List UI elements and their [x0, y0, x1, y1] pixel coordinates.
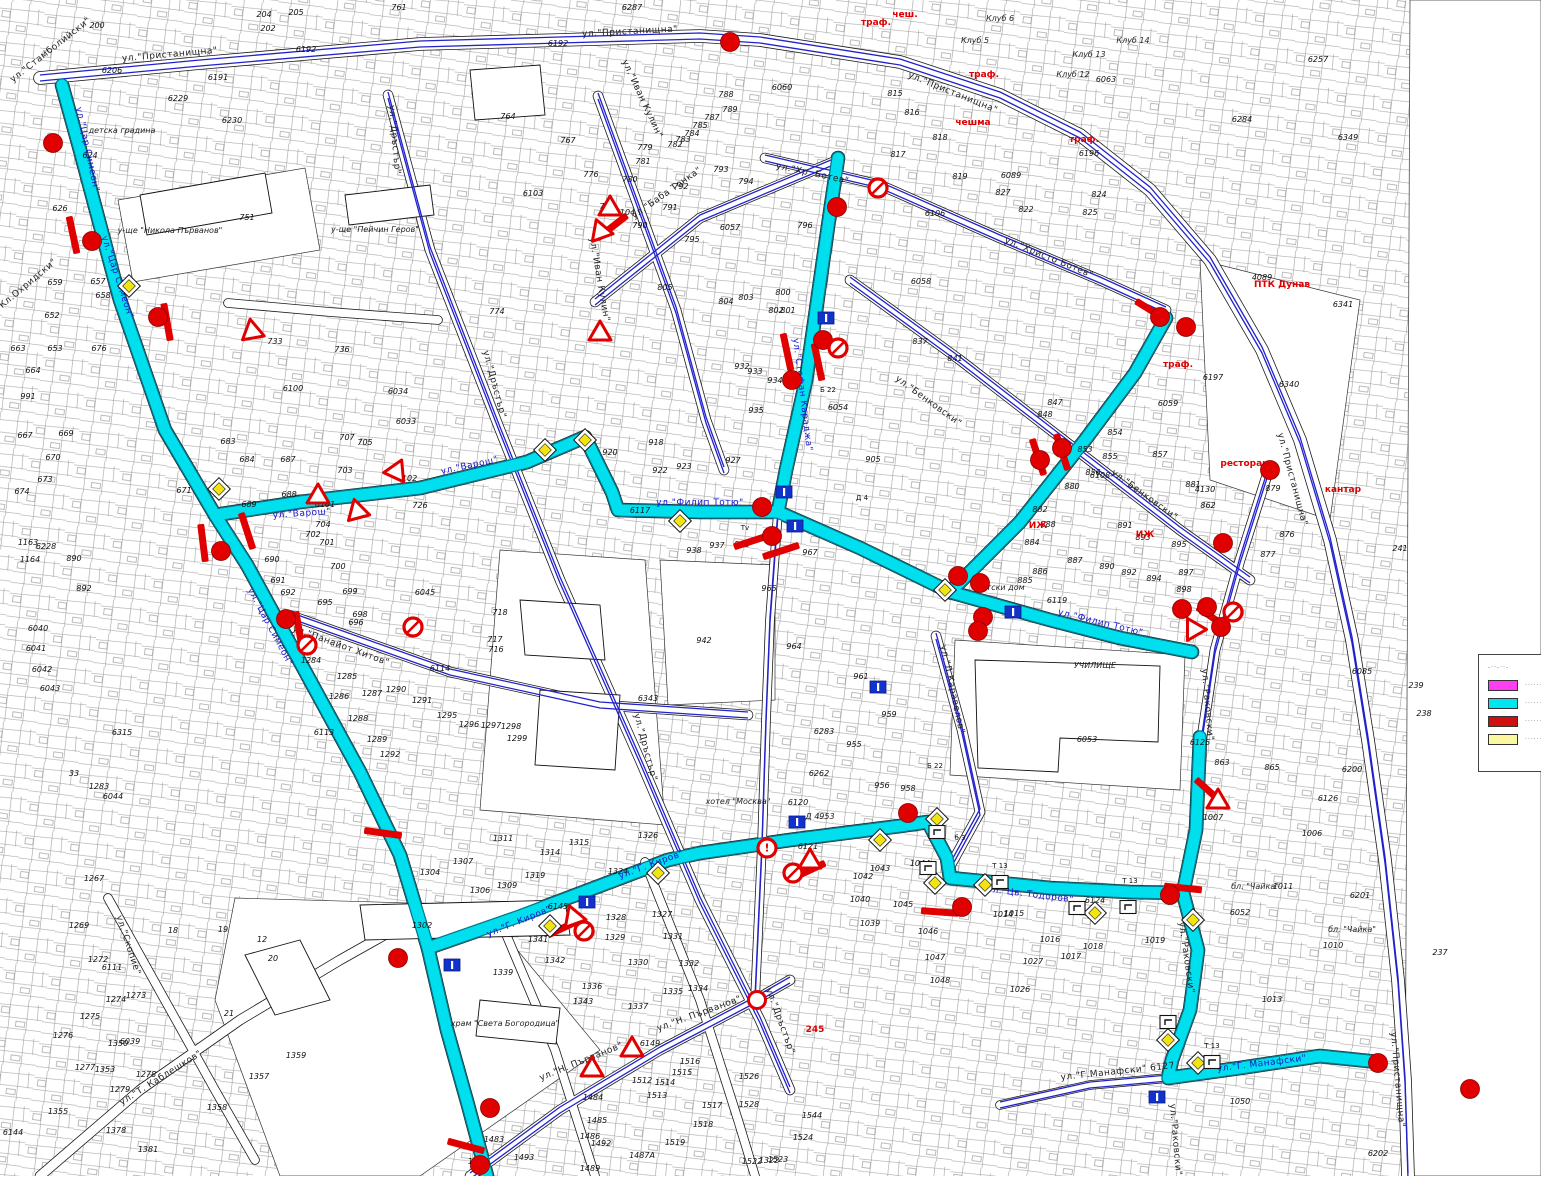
parcel-number: 793: [713, 165, 728, 174]
parcel-number: 688: [281, 490, 296, 499]
parcel-number: 701: [319, 538, 334, 547]
parcel-number: 6287: [622, 3, 643, 12]
parcel-number: 6149: [640, 1039, 660, 1048]
parcel-number: 1027: [1023, 957, 1044, 966]
parcel-number: 704: [315, 520, 330, 529]
legend-label: ········: [1525, 718, 1541, 725]
parcel-number: 1276: [53, 1031, 73, 1040]
parcel-number: 1311: [493, 834, 513, 843]
parcel-number: 817: [890, 150, 906, 159]
parcel-number: 815: [887, 89, 902, 98]
parcel-number: 703: [337, 466, 352, 475]
parcel-number: 6201: [1350, 891, 1370, 900]
warning-glyph: !: [764, 842, 769, 855]
legend-swatch-cyan: [1488, 698, 1518, 709]
parcel-number: 882: [1032, 505, 1047, 514]
survey-hub-icon: [1173, 600, 1192, 619]
parcel-number: 6196: [1079, 149, 1099, 158]
parcel-number: 671: [176, 486, 191, 495]
no-entry-sign-icon: [829, 339, 847, 357]
red-annotation: траф.: [1069, 135, 1099, 145]
parcel-number: 927: [725, 456, 741, 465]
info-sign-glyph: [586, 898, 588, 906]
parcel-number: 1013: [1262, 995, 1282, 1004]
parcel-number: 6085: [1352, 667, 1372, 676]
parcel-number: 6058: [911, 277, 931, 286]
parcel-number: 690: [264, 555, 279, 564]
parcel-number: 6114: [430, 664, 450, 673]
parcel-number: 967: [802, 548, 818, 557]
parcel-number: 956: [874, 781, 889, 790]
survey-hub-icon: [1031, 451, 1050, 470]
parcel-number: 237: [1432, 948, 1448, 957]
parcel-number: 855: [1102, 452, 1117, 461]
parcel-number: 1267: [84, 874, 105, 883]
sign-code-label: Б 22: [927, 762, 943, 770]
info-sign-icon: [818, 312, 834, 324]
parcel-number: 890: [1099, 562, 1114, 571]
parcel-number: 6103: [523, 189, 543, 198]
parcel-number: 961: [853, 672, 868, 681]
parcel-number: 1378: [106, 1126, 126, 1135]
area-label: Клуб 12: [1056, 70, 1089, 79]
parcel-number: 241: [1392, 544, 1407, 553]
parcel-number: 825: [1082, 208, 1097, 217]
parcel-number: 880: [1064, 482, 1079, 491]
area-label: храм "Света Богородица": [450, 1019, 560, 1028]
parcel-number: 1296: [459, 720, 479, 729]
no-entry-sign-icon: [404, 618, 422, 636]
parcel-number: 892: [76, 584, 91, 593]
parcel-number: 20: [268, 954, 278, 963]
parcel-number: 1304: [420, 868, 440, 877]
parcel-number: 6045: [415, 588, 435, 597]
parcel-number: 1334: [688, 984, 708, 993]
info-sign-glyph: [451, 961, 453, 969]
info-sign-icon: [870, 681, 886, 693]
parcel-number: 1047: [925, 953, 946, 962]
parcel-number: 781: [635, 157, 650, 166]
parcel-number: 959: [881, 710, 896, 719]
parcel-number: 857: [1152, 450, 1168, 459]
survey-hub-icon: [149, 308, 168, 327]
parcel-number: 6262: [809, 769, 829, 778]
map-svg: 2002042052026206619261926191622962306246…: [0, 0, 1541, 1176]
parcel-number: 782: [667, 140, 682, 149]
parcel-number: 1299: [507, 734, 527, 743]
parcel-number: 894: [1146, 574, 1161, 583]
parcel-number: 818: [932, 133, 947, 142]
area-label: детска градина: [88, 126, 156, 135]
parcel-number: 626: [52, 204, 67, 213]
signpost-plate: [1120, 901, 1136, 914]
survey-hub-icon: [1369, 1054, 1388, 1073]
parcel-number: 853: [1077, 445, 1092, 454]
parcel-number: 1007: [1203, 813, 1224, 822]
parcel-number: 1512: [632, 1076, 652, 1085]
parcel-number: 895: [1171, 540, 1186, 549]
signpost-icon: [992, 876, 1008, 889]
parcel-number: 1017: [1061, 952, 1082, 961]
parcel-number: 6060: [772, 83, 792, 92]
info-sign-glyph: [794, 522, 796, 530]
legend-item-red: ········: [1488, 716, 1541, 727]
legend-swatch-red: [1488, 716, 1518, 727]
red-annotation: траф.: [969, 70, 999, 80]
parcel-number: 847: [1047, 398, 1063, 407]
no-entry-sign-icon: [1224, 603, 1242, 621]
city-map-stage: 2002042052026206619261926191622962306246…: [0, 0, 1541, 1176]
parcel-number: 1331: [663, 932, 683, 941]
info-sign-glyph: [825, 314, 827, 322]
parcel-number: 1337: [628, 1002, 649, 1011]
signpost-icon: [1120, 901, 1136, 914]
parcel-number: 6191: [208, 73, 228, 82]
parcel-number: 1048: [930, 976, 950, 985]
parcel-number: 6284: [1232, 115, 1252, 124]
parcel-number: 991: [20, 392, 35, 401]
legend-item-none: -··-··-: [1488, 662, 1541, 673]
parcel-number: 676: [91, 344, 106, 353]
parcel-number: 854: [1107, 428, 1122, 437]
parcel-number: 892: [1121, 568, 1136, 577]
parcel-number: 691: [270, 576, 285, 585]
area-label: у-ще "Никола Първанов": [117, 226, 223, 235]
parcel-number: 1039: [860, 919, 880, 928]
parcel-number: 4130: [1195, 485, 1215, 494]
parcel-number: 652: [44, 311, 59, 320]
parcel-number: 779: [637, 143, 652, 152]
parcel-number: 1330: [628, 958, 648, 967]
area-label: хотел "Москва": [705, 797, 771, 806]
info-sign-icon: [444, 959, 460, 971]
signpost-icon: [1204, 1056, 1220, 1069]
parcel-number: 12: [257, 935, 267, 944]
survey-hub-icon: [763, 527, 782, 546]
parcel-number: 1322: [759, 1156, 779, 1165]
survey-hub-icon: [212, 542, 231, 561]
parcel-number: 1042: [853, 872, 873, 881]
parcel-number: 1014: [993, 910, 1013, 919]
parcel-number: 6106: [925, 209, 945, 218]
parcel-number: 1327: [652, 910, 673, 919]
parcel-number: 6229: [168, 94, 188, 103]
parcel-number: 1328: [606, 913, 626, 922]
parcel-number: 1302: [412, 921, 432, 930]
parcel-number: 6057: [720, 223, 741, 232]
parcel-number: 1524: [793, 1133, 813, 1142]
info-sign-glyph: [796, 818, 798, 826]
info-sign-icon: [579, 896, 595, 908]
info-sign-icon: [1005, 606, 1021, 618]
parcel-number: 6111: [102, 963, 122, 972]
parcel-number: 674: [14, 487, 29, 496]
parcel-number: 1274: [106, 995, 126, 1004]
parcel-number: 6228: [36, 542, 56, 551]
warning-sign-icon: !: [758, 839, 776, 857]
parcel-number: 6034: [388, 387, 408, 396]
parcel-number: 659: [47, 278, 62, 287]
parcel-number: 774: [489, 307, 504, 316]
legend-label: ········: [1525, 682, 1541, 689]
parcel-number: 789: [722, 105, 737, 114]
red-annotation: траф.: [861, 18, 891, 28]
sign-code-label: Т 13: [1121, 877, 1137, 885]
parcel-number: 1306: [470, 886, 490, 895]
no-entry-sign-icon: [298, 636, 316, 654]
parcel-number: 935: [748, 406, 763, 415]
parcel-number: 205: [288, 8, 303, 17]
parcel-number: 1275: [80, 1012, 100, 1021]
legend-label: -··-··-: [1488, 664, 1509, 671]
parcel-number: 657: [90, 277, 106, 286]
parcel-number: 1291: [412, 696, 432, 705]
signpost-plate: [920, 862, 936, 875]
survey-hub-icon: [277, 610, 296, 629]
survey-hub-icon: [83, 232, 102, 251]
parcel-number: 1518: [693, 1120, 713, 1129]
survey-hub-icon: [1053, 439, 1072, 458]
parcel-number: 1359: [286, 1051, 306, 1060]
parcel-number: 890: [66, 554, 81, 563]
parcel-number: 1487A: [629, 1151, 655, 1160]
parcel-number: 1019: [1145, 936, 1165, 945]
parcel-number: 1329: [605, 933, 625, 942]
parcel-number: 239: [1408, 681, 1423, 690]
parcel-number: 6052: [1230, 908, 1250, 917]
area-label: Клуб 6: [986, 14, 1014, 23]
parcel-number: 1277: [75, 1063, 96, 1072]
parcel-number: 794: [738, 177, 753, 186]
parcel-number: 827: [995, 188, 1011, 197]
parcel-number: 819: [952, 172, 967, 181]
parcel-number: 898: [1176, 585, 1191, 594]
area-label: Д 4953: [804, 812, 834, 821]
parcel-number: 6257: [1308, 55, 1329, 64]
parcel-number: 695: [317, 598, 332, 607]
parcel-number: 937: [709, 541, 725, 550]
survey-hub-icon: [1214, 534, 1233, 553]
parcel-number: 796: [797, 221, 812, 230]
parcel-number: 1519: [665, 1138, 685, 1147]
survey-hub-icon: [1151, 308, 1170, 327]
parcel-number: 1292: [380, 750, 400, 759]
parcel-number: 803: [738, 293, 753, 302]
parcel-number: 1335: [663, 987, 683, 996]
survey-hub-icon: [1177, 318, 1196, 337]
parcel-number: 790: [632, 221, 647, 230]
parcel-number: 764: [500, 112, 515, 121]
parcel-number: 1526: [739, 1072, 759, 1081]
parcel-number: 673: [37, 475, 52, 484]
parcel-number: 670: [45, 453, 60, 462]
survey-hub-icon: [389, 949, 408, 968]
parcel-number: 202: [260, 24, 275, 33]
parcel-number: 6315: [112, 728, 132, 737]
info-sign-icon: [789, 816, 805, 828]
survey-hub-icon: [44, 134, 63, 153]
parcel-number: 6100: [283, 384, 303, 393]
parcel-number: 1286: [329, 692, 349, 701]
parcel-number: 795: [684, 235, 699, 244]
parcel-number: 1287: [362, 689, 383, 698]
parcel-number: 897: [1178, 568, 1194, 577]
parcel-number: 698: [352, 610, 367, 619]
parcel-number: 848: [1037, 410, 1052, 419]
parcel-number: 891: [1117, 521, 1132, 530]
red-annotation: 245: [806, 1025, 825, 1035]
parcel-number: 6192: [548, 39, 568, 48]
parcel-number: 1544: [802, 1111, 822, 1120]
parcel-number: 1484: [583, 1093, 603, 1102]
parcel-number: 6040: [28, 624, 48, 633]
survey-hub-icon: [1161, 886, 1180, 905]
survey-hub-icon: [949, 567, 968, 586]
parcel-number: 761: [391, 3, 406, 12]
parcel-number: 1283: [89, 782, 109, 791]
parcel-number: 6041: [26, 644, 46, 653]
info-sign-icon: [787, 520, 803, 532]
parcel-number: 6054: [828, 403, 848, 412]
survey-hub-icon: [828, 198, 847, 217]
area-label: Клуб 5: [961, 36, 989, 45]
parcel-number: 958: [900, 784, 915, 793]
parcel-number: 1355: [48, 1107, 68, 1116]
survey-hub-icon: [1461, 1080, 1480, 1099]
parcel-number: 6341: [1333, 300, 1353, 309]
parcel-number: 905: [865, 455, 880, 464]
legend-swatch-magenta: [1488, 680, 1518, 691]
parcel-number: 736: [334, 345, 349, 354]
parcel-number: 1381: [138, 1145, 158, 1154]
parcel-number: 1514: [655, 1078, 675, 1087]
parcel-number: 1006: [1302, 829, 1322, 838]
parcel-number: 6340: [1279, 380, 1299, 389]
parcel-number: 687: [280, 455, 296, 464]
parcel-number: 653: [47, 344, 62, 353]
sign-code-label: Б 22: [820, 386, 836, 394]
red-annotation: ПТК Дунав: [1254, 280, 1310, 290]
parcel-number: 1350: [108, 1039, 128, 1048]
parcel-number: 804: [718, 297, 733, 306]
parcel-number: 733: [267, 337, 282, 346]
parcel-number: 33: [69, 769, 79, 778]
legend-swatch-yellow: [1488, 734, 1518, 745]
parcel-number: 887: [1067, 556, 1083, 565]
signpost-plate: [1204, 1056, 1220, 1069]
parcel-number: 6144: [3, 1128, 23, 1137]
parcel-number: 1483: [484, 1135, 504, 1144]
parcel-number: 965: [761, 584, 776, 593]
parcel-number: 1050: [1230, 1097, 1250, 1106]
open-area: [660, 560, 775, 705]
parcel-number: 6126: [1318, 794, 1338, 803]
parcel-number: 942: [696, 636, 711, 645]
street-label: ул."Филип Тотю": [656, 498, 744, 508]
parcel-number: 6202: [1368, 1149, 1388, 1158]
parcel-number: 6206: [102, 66, 122, 75]
parcel-number: 776: [583, 170, 598, 179]
parcel-number: 1298: [501, 722, 521, 731]
survey-hub-icon: [481, 1099, 500, 1118]
parcel-number: 1342: [545, 956, 565, 965]
parcel-number: 1284: [301, 656, 321, 665]
parcel-number: 6349: [1338, 133, 1358, 142]
parcel-number: 1343: [573, 997, 593, 1006]
red-annotation: ИЖ: [1136, 530, 1155, 540]
parcel-number: 824: [1091, 190, 1106, 199]
signpost-icon: [920, 862, 936, 875]
parcel-number: 1516: [680, 1057, 700, 1066]
parcel-number: 879: [1265, 484, 1280, 493]
parcel-number: 204: [256, 10, 271, 19]
info-sign-icon: [776, 486, 792, 498]
parcel-number: 876: [1279, 530, 1294, 539]
parcel-number: 696: [348, 618, 363, 627]
parcel-number: 6089: [1001, 171, 1021, 180]
parcel-number: 923: [676, 462, 691, 471]
area-label: Клуб 14: [1116, 36, 1149, 45]
parcel-number: 6343: [638, 694, 658, 703]
parcel-number: 1315: [569, 838, 589, 847]
parcel-number: 841: [947, 354, 962, 363]
parcel-number: 6283: [814, 727, 834, 736]
parcel-number: 1513: [647, 1091, 667, 1100]
parcel-number: 1018: [1083, 942, 1103, 951]
parcel-number: 1358: [207, 1103, 227, 1112]
parcel-number: 822: [1018, 205, 1033, 214]
parcel-number: 6120: [788, 798, 808, 807]
parcel-number: 1297: [481, 721, 502, 730]
parcel-number: 6059: [1158, 399, 1178, 408]
parcel-number: 1528: [739, 1100, 759, 1109]
parcel-number: 1164: [20, 555, 40, 564]
parcel-number: 1290: [386, 685, 406, 694]
parcel-number: 884: [1024, 538, 1039, 547]
parcel-number: 716: [488, 645, 503, 654]
parcel-number: 700: [330, 562, 345, 571]
sign-code-label: б 3: [955, 834, 966, 842]
parcel-number: 791: [662, 203, 677, 212]
parcel-number: 1357: [249, 1072, 270, 1081]
parcel-number: 683: [220, 437, 235, 446]
red-annotation: кантар: [1325, 485, 1362, 495]
legend-item-magenta: ········: [1488, 680, 1541, 691]
parcel-number: 717: [487, 635, 503, 644]
no-entry-sign-icon: [575, 922, 593, 940]
survey-hub-icon: [721, 33, 740, 52]
parcel-number: 1319: [525, 871, 545, 880]
parcel-number: 18: [168, 926, 178, 935]
sign-code-label: Тv: [740, 524, 749, 532]
open-area: [1405, 0, 1541, 1176]
parcel-number: 6113: [314, 728, 334, 737]
parcel-number: 6053: [1077, 735, 1097, 744]
survey-hub-icon: [783, 371, 802, 390]
parcel-number: 1517: [702, 1101, 723, 1110]
parcel-number: 837: [912, 337, 928, 346]
signpost-plate: [1160, 1016, 1176, 1029]
parcel-number: 1040: [850, 895, 870, 904]
parcel-number: 863: [1214, 758, 1229, 767]
parcel-number: 6063: [1096, 75, 1116, 84]
parcel-number: 663: [10, 344, 25, 353]
parcel-number: 1493: [514, 1153, 534, 1162]
parcel-number: 1010: [1323, 941, 1343, 950]
parcel-number: 6192: [296, 45, 316, 54]
area-label: бл. "Чайка": [1328, 925, 1376, 934]
info-sign-glyph: [877, 683, 879, 691]
